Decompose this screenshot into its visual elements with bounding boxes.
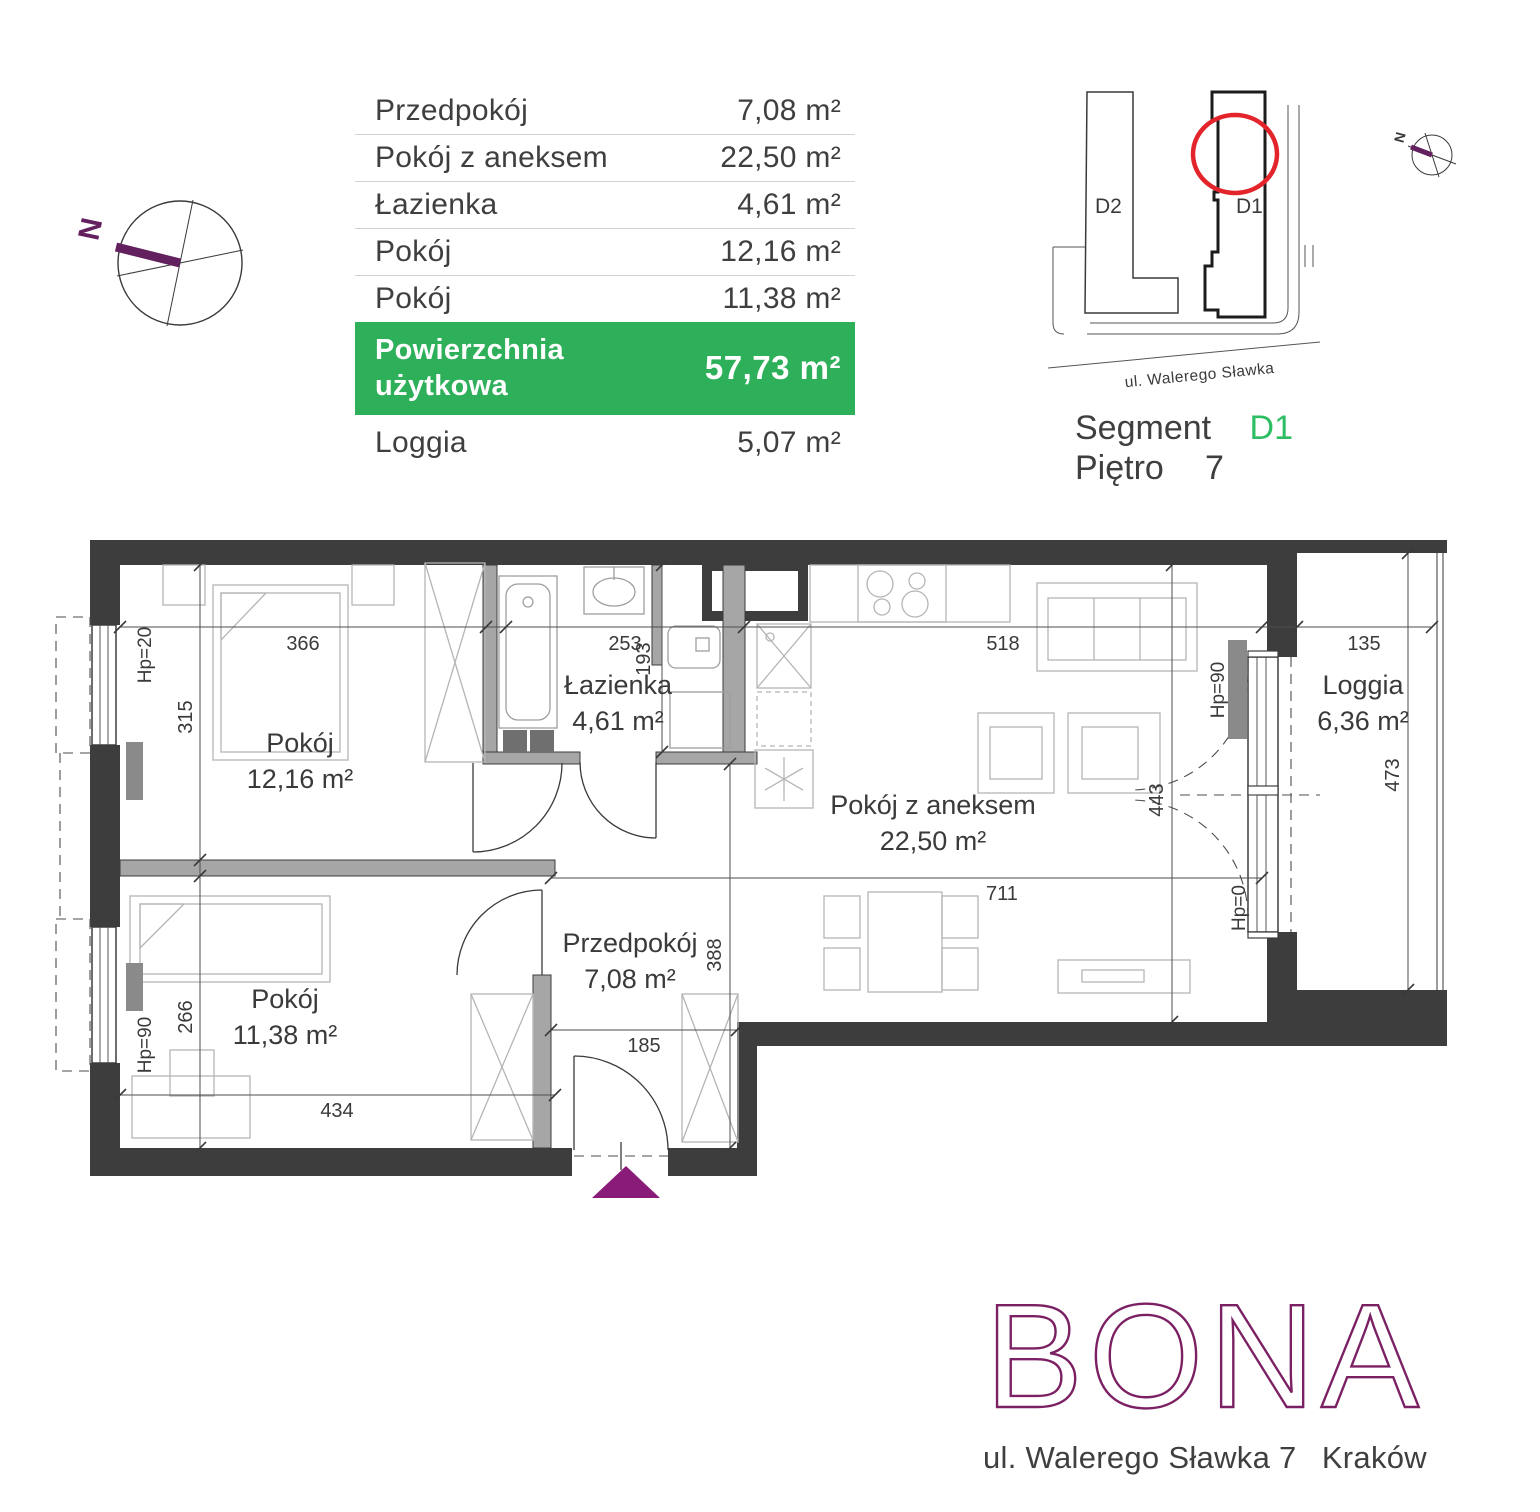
room-name: Loggia bbox=[1322, 670, 1404, 700]
radiator bbox=[126, 742, 143, 800]
window-bed1 bbox=[56, 617, 122, 753]
installation-shaft bbox=[707, 566, 803, 616]
dim-label: 443 bbox=[1146, 783, 1168, 816]
washer-block bbox=[503, 730, 527, 752]
sink bbox=[584, 567, 644, 614]
room-name: Pokój bbox=[251, 984, 319, 1014]
dim-label: 388 bbox=[704, 938, 726, 971]
room-area: 11,38 m² bbox=[233, 1020, 338, 1050]
hp-label: Hp=90 bbox=[1208, 662, 1229, 719]
wardrobe bbox=[425, 563, 485, 762]
room-name: Pokój z aneksem bbox=[830, 790, 1036, 820]
hp-label: Hp=0 bbox=[1229, 885, 1250, 931]
kitchen-counter bbox=[810, 565, 1010, 622]
dim-label: 135 bbox=[1347, 633, 1380, 655]
entrance-arrow-icon bbox=[592, 1166, 660, 1198]
bathtub bbox=[499, 576, 557, 728]
brand-address: ul. Walerego Sławka 7 Kraków bbox=[983, 1440, 1427, 1476]
door-swing bbox=[580, 762, 656, 838]
door-swing bbox=[457, 890, 542, 975]
dim-label: 266 bbox=[175, 1000, 197, 1033]
room-name: Przedpokój bbox=[562, 928, 697, 958]
washer-block bbox=[530, 730, 554, 752]
bed-single bbox=[130, 896, 330, 982]
dim-label: 711 bbox=[986, 883, 1018, 905]
dim-label: 434 bbox=[320, 1100, 353, 1122]
interior-walls bbox=[120, 565, 757, 1148]
window-bed2 bbox=[56, 919, 122, 1071]
toilet bbox=[668, 626, 720, 668]
armchair bbox=[1068, 713, 1160, 793]
hp-label: Hp=20 bbox=[135, 627, 156, 684]
dim-label: 473 bbox=[1382, 758, 1404, 791]
bona-logo: BONA bbox=[980, 1285, 1430, 1435]
room-area: 12,16 m² bbox=[247, 764, 354, 794]
loggia-railing bbox=[1437, 553, 1443, 990]
washing-machine bbox=[670, 692, 730, 748]
room-area: 7,08 m² bbox=[584, 964, 676, 994]
radiator bbox=[1228, 640, 1247, 739]
door-swing bbox=[473, 763, 562, 852]
room-area: 4,61 m² bbox=[572, 706, 664, 736]
tv-stand bbox=[1058, 960, 1190, 993]
dim-label: 315 bbox=[175, 700, 197, 733]
entrance-door-swing bbox=[574, 1056, 668, 1150]
address-city: Kraków bbox=[1322, 1440, 1427, 1476]
room-name: Pokój bbox=[266, 728, 334, 758]
kitchen-sink-unit bbox=[757, 624, 811, 688]
room-name: Łazienka bbox=[564, 670, 673, 700]
dining-table bbox=[824, 892, 978, 992]
armchair bbox=[978, 713, 1054, 793]
hp-label: Hp=90 bbox=[135, 1017, 156, 1074]
fridge bbox=[755, 750, 813, 808]
dim-label: 366 bbox=[286, 633, 319, 655]
dishwasher bbox=[757, 692, 811, 746]
radiator bbox=[126, 963, 143, 1011]
room-area: 22,50 m² bbox=[880, 826, 987, 856]
logo-text: BONA bbox=[985, 1285, 1425, 1435]
address-street: ul. Walerego Sławka 7 bbox=[983, 1440, 1297, 1476]
room-area: 6,36 m² bbox=[1317, 706, 1409, 736]
wardrobe bbox=[471, 994, 533, 1140]
dim-label: 185 bbox=[627, 1035, 660, 1057]
dim-label: 518 bbox=[986, 633, 1019, 655]
